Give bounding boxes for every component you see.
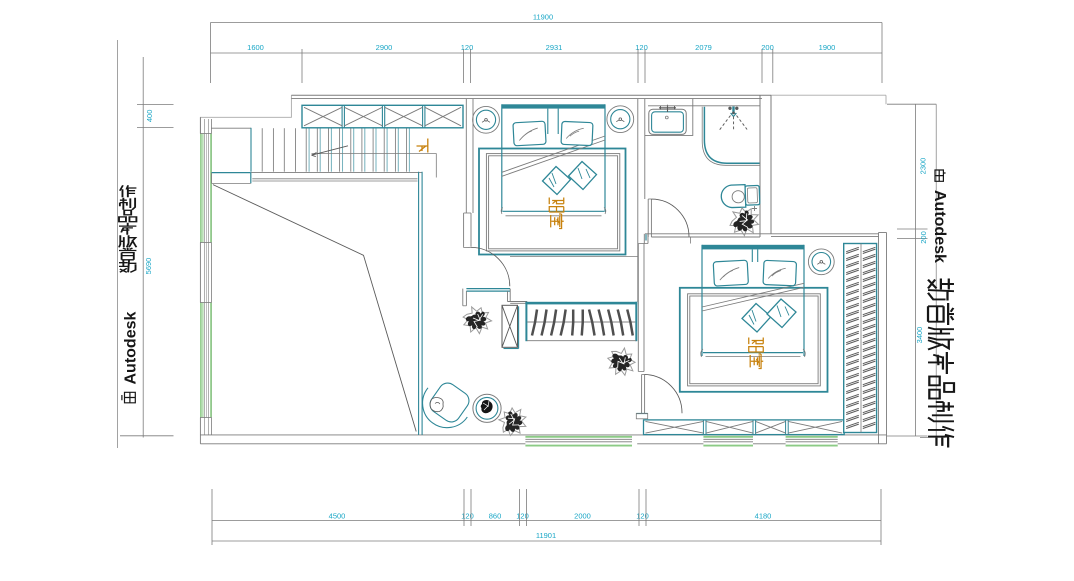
svg-text:4500: 4500 <box>329 512 346 521</box>
svg-text:2079: 2079 <box>695 43 712 52</box>
svg-text:3400: 3400 <box>915 327 924 344</box>
svg-text:200: 200 <box>761 43 774 52</box>
svg-text:2931: 2931 <box>546 43 563 52</box>
svg-text:4180: 4180 <box>755 512 772 521</box>
svg-text:2000: 2000 <box>574 512 591 521</box>
svg-text:2300: 2300 <box>919 158 928 175</box>
svg-text:5690: 5690 <box>144 258 153 275</box>
svg-text:1900: 1900 <box>819 43 836 52</box>
svg-text:1600: 1600 <box>247 43 264 52</box>
svg-text:Autodesk: Autodesk <box>931 190 948 263</box>
svg-text:2900: 2900 <box>376 43 393 52</box>
svg-text:11900: 11900 <box>533 13 553 22</box>
svg-text:400: 400 <box>145 110 154 123</box>
svg-text:120: 120 <box>636 512 649 521</box>
svg-text:200: 200 <box>919 231 928 244</box>
svg-text:11901: 11901 <box>536 531 556 540</box>
svg-text:120: 120 <box>461 512 474 521</box>
svg-text:120: 120 <box>635 43 648 52</box>
svg-text:120: 120 <box>461 43 474 52</box>
svg-text:Autodesk: Autodesk <box>122 312 139 385</box>
svg-text:860: 860 <box>489 512 502 521</box>
